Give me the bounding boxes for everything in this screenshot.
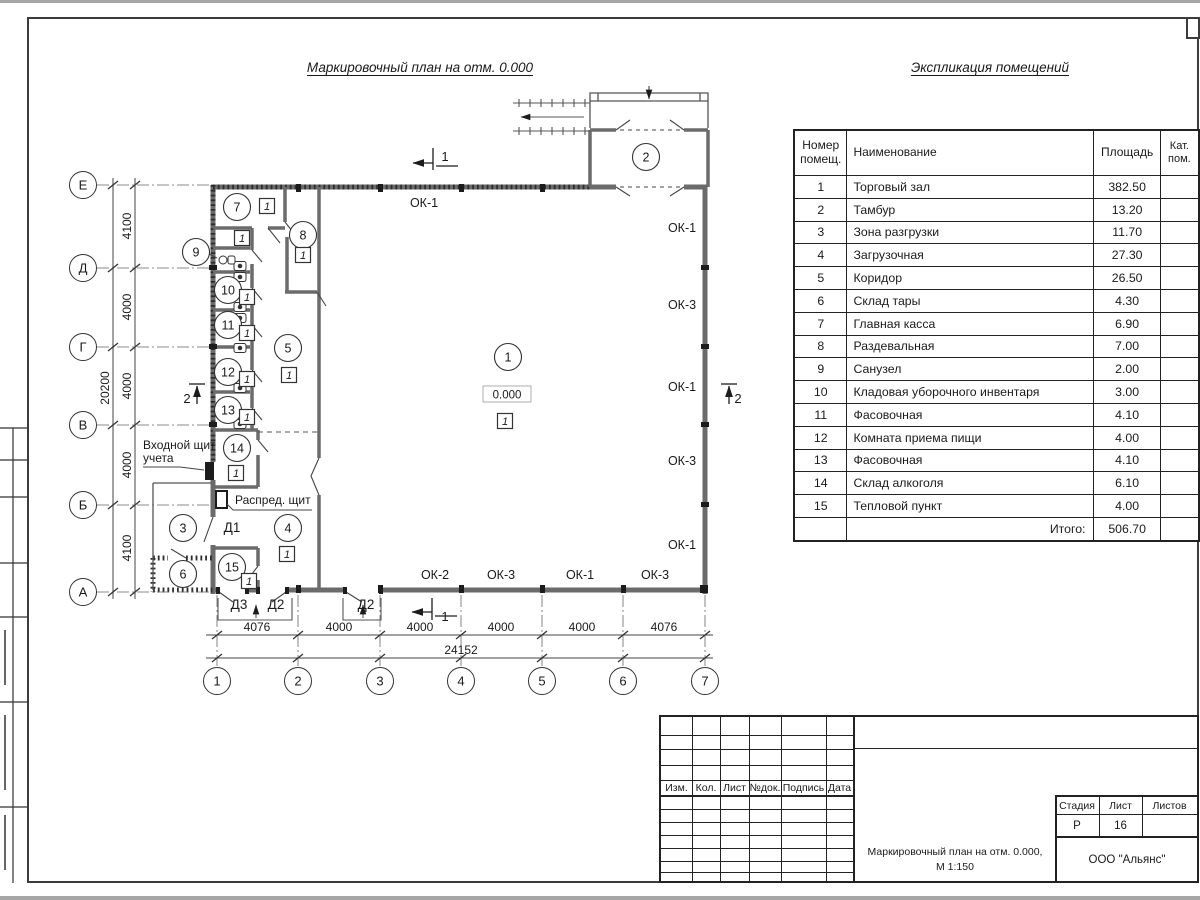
table-cell [1160,176,1199,199]
dim-label: 4100 [120,534,134,561]
axis-number: 7 [701,674,708,689]
dim-label: 4000 [326,620,353,634]
room-number: 7 [234,201,241,215]
sink-icon [234,344,246,353]
dim-label: 4000 [407,620,434,634]
note-text: учета [143,451,174,465]
sheets-value [1142,815,1197,836]
table-cell [1160,381,1199,404]
table-row: 1Торговый зал382.50 [794,176,1199,199]
axis-number: 5 [538,674,545,689]
table-row: 7Главная касса6.90 [794,312,1199,335]
table-cell: Фасовочная [847,449,1094,472]
note-leader [180,467,204,470]
table-cell [1160,495,1199,518]
room-number: 13 [221,404,235,418]
elevation-value: 0.000 [493,390,522,402]
table-row: 2Тамбур13.20 [794,198,1199,221]
table-cell: 5 [794,267,847,290]
category-number: 1 [239,233,245,245]
table-row: 6Склад тары4.30 [794,289,1199,312]
table-cell: 2.00 [1094,358,1160,381]
table-cell: 6 [794,289,847,312]
table-cell [1160,289,1199,312]
table-row: 5Коридор26.50 [794,267,1199,290]
table-cell: 1 [794,176,847,199]
table-row: 9Санузел2.00 [794,358,1199,381]
room-numbers: 123456789101112131415 [170,144,660,588]
door-label: Д2 [268,597,285,612]
table-cell [1160,198,1199,221]
window-label: ОК-1 [410,196,438,210]
category-number: 1 [244,374,250,386]
window-label: ОК-1 [668,538,696,552]
dim-label: 4000 [120,451,134,478]
category-number: 1 [244,292,250,304]
table-cell: 11.70 [1094,221,1160,244]
table-row: 3Зона разгрузки11.70 [794,221,1199,244]
table-cell [1160,312,1199,335]
axis-number: 1 [213,674,220,689]
table-cell [1160,358,1199,381]
sink-icon [234,262,246,271]
table-cell: 13.20 [1094,198,1160,221]
table-cell: 14 [794,472,847,495]
axis-letter: Г [79,340,86,355]
table-row: 13Фасовочная4.10 [794,449,1199,472]
room-number: 11 [222,319,235,333]
rev-col-kol: Кол. [692,780,720,795]
dim-label: 4000 [488,620,515,634]
table-cell: 6.10 [1094,472,1160,495]
table-cell: 27.30 [1094,244,1160,267]
table-cell: 4.30 [1094,289,1160,312]
table-cell [1160,426,1199,449]
table-cell: 3.00 [1094,381,1160,404]
table-cell: 10 [794,381,847,404]
table-cell: 11 [794,403,847,426]
table-cell: 4.00 [1094,495,1160,518]
table-cell: 9 [794,358,847,381]
table-row: 15Тепловой пункт4.00 [794,495,1199,518]
dim-total-label: 20200 [98,371,112,405]
dim-label: 4076 [244,620,271,634]
distribution-panel [216,491,227,508]
category-number: 1 [502,416,508,428]
table-cell: Тепловой пункт [847,495,1094,518]
table-cell: 4.10 [1094,449,1160,472]
axis-letter: Д [79,261,88,276]
table-cell [1160,403,1199,426]
table-row: 12Комната приема пищи4.00 [794,426,1199,449]
sheet-label: Лист [1099,797,1142,814]
dim-label: 4000 [569,620,596,634]
title-block: Изм. Кол. Лист №док. Подпись Дата Стадия… [659,715,1199,883]
rev-col-data: Дата [826,780,853,795]
door-label: Д1 [224,520,241,535]
table-cell: 13 [794,449,847,472]
table-cell [1160,449,1199,472]
table-cell: 4 [794,244,847,267]
room-number: 3 [180,522,187,536]
room-number: 15 [225,561,239,575]
category-number: 1 [284,549,290,561]
dim-label: 4000 [120,372,134,399]
section-number: 2 [183,391,190,406]
window-label: ОК-3 [487,568,515,582]
table-cell: Загрузочная [847,244,1094,267]
dim-total-label: 24152 [444,643,478,657]
room-number: 12 [221,366,235,380]
category-number: 1 [244,412,250,424]
room-number: 5 [285,342,292,356]
table-cell: Зона разгрузки [847,221,1094,244]
axis-letter: А [79,585,88,600]
table-cell: Склад алкоголя [847,472,1094,495]
table-cell: Коридор [847,267,1094,290]
table-cell: 12 [794,426,847,449]
category-marks: 111111111111 [229,199,513,589]
door-label: Д2 [358,597,375,612]
axis-number: 4 [457,674,464,689]
table-cell: Комната приема пищи [847,426,1094,449]
room-number: 8 [300,229,307,243]
col-header-category: Кат. пом. [1160,130,1199,176]
table-row: 8Раздевальная7.00 [794,335,1199,358]
room-number: 14 [230,442,244,456]
section-marks: 1122 [183,148,741,624]
window-label: ОК-3 [668,454,696,468]
category-number: 1 [244,328,250,340]
total-value: 506.70 [1094,517,1160,540]
rev-col-podpis: Подпись [781,780,826,795]
table-cell [1160,221,1199,244]
explication-table: Номер помещ. Наименование Площадь Кат. п… [793,129,1200,542]
note-text: Входной щит [143,438,216,452]
room-number: 10 [221,284,235,298]
table-cell: Санузел [847,358,1094,381]
entry-meter-panel [205,462,214,480]
table-cell: 6.90 [1094,312,1160,335]
note-text: Распред. щит [235,493,311,507]
table-cell: 2 [794,198,847,221]
rev-col-izm: Изм. [661,780,692,795]
table-cell: Кладовая уборочного инвентаря [847,381,1094,404]
table-cell: 15 [794,495,847,518]
axis-letter: В [79,418,88,433]
table-cell: 4.10 [1094,403,1160,426]
window-label: ОК-1 [668,380,696,394]
table-cell [1160,244,1199,267]
total-label: Итого: [847,517,1094,540]
elevation-mark: 0.000 [483,386,531,402]
window-label: ОК-3 [668,298,696,312]
dim-label: 4100 [120,212,134,239]
axis-number: 6 [619,674,626,689]
table-row: 10Кладовая уборочного инвентаря3.00 [794,381,1199,404]
table-cell [1160,335,1199,358]
table-cell: 3 [794,221,847,244]
document-title: Маркировочный план на отм. 0.000, М 1:15… [855,838,1055,881]
table-cell: Фасовочная [847,403,1094,426]
total-row: Итого: 506.70 [794,517,1199,540]
table-cell: 382.50 [1094,176,1160,199]
table-cell: 4.00 [1094,426,1160,449]
section-number: 1 [441,609,448,624]
category-number: 1 [246,576,252,588]
dim-label: 4000 [120,293,134,320]
table-cell [1160,472,1199,495]
rev-col-list: Лист [720,780,749,795]
stage-value: Р [1055,815,1099,836]
table-cell [1160,267,1199,290]
table-row: 4Загрузочная27.30 [794,244,1199,267]
window-label: ОК-1 [566,568,594,582]
window-label: ОК-1 [668,221,696,235]
table-cell: 8 [794,335,847,358]
rev-col-ndok: №док. [749,780,781,795]
section-number: 2 [734,391,741,406]
stage-label: Стадия [1055,797,1099,814]
left-border-stamp [0,428,27,883]
room-number: 1 [505,351,512,365]
room-number: 6 [180,568,187,582]
axis-letter: Б [79,498,88,513]
door-label: Д3 [231,597,248,612]
axis-number: 3 [376,674,383,689]
col-header-name: Наименование [847,130,1094,176]
table-cell: 26.50 [1094,267,1160,290]
table-cell: Главная касса [847,312,1094,335]
table-cell: 7.00 [1094,335,1160,358]
table-cell: 7 [794,312,847,335]
col-header-number: Номер помещ. [794,130,847,176]
sheet-value: 16 [1099,815,1142,836]
col-header-area: Площадь [1094,130,1160,176]
company-name: ООО "Альянс" [1057,838,1197,881]
table-row: 11Фасовочная4.10 [794,403,1199,426]
entrance-ramp [513,99,590,135]
table-cell: Торговый зал [847,176,1094,199]
window-label: ОК-2 [421,568,449,582]
toilet-icon [219,256,235,264]
axis-number: 2 [294,674,301,689]
section-number: 1 [441,149,448,164]
category-number: 1 [286,370,292,382]
category-number: 1 [300,250,306,262]
window-label: ОК-3 [641,568,669,582]
table-row: 14Склад алкоголя6.10 [794,472,1199,495]
room-number: 9 [193,246,200,260]
room-number: 2 [643,151,650,165]
category-number: 1 [264,201,270,213]
table-cell: Склад тары [847,289,1094,312]
dim-label: 4076 [651,620,678,634]
category-number: 1 [233,468,239,480]
axis-letter: Е [79,178,88,193]
room-number: 4 [285,522,292,536]
sheets-label: Листов [1142,797,1197,814]
table-cell: Тамбур [847,198,1094,221]
table-cell: Раздевальная [847,335,1094,358]
axis-grid: ЕДГВБА1234567 [70,172,719,695]
